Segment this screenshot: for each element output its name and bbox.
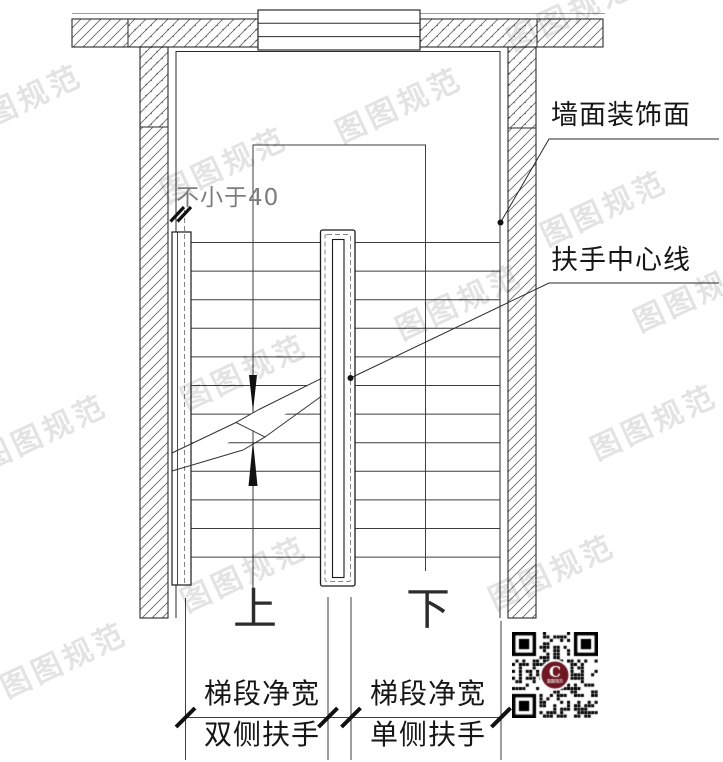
min-clearance-label: 不小于40: [176, 187, 279, 210]
dim-right-width-label: 梯段净宽: [358, 681, 498, 709]
wall-finish-label: 墙面装饰面: [551, 102, 691, 129]
dim-left-handrail-label: 双侧扶手: [192, 722, 332, 750]
window-symbol: [258, 10, 420, 50]
left-handrail: [172, 210, 191, 585]
stair-plan-drawing: 图图规范图图规范图图规范图图规范图图规范图图规范图图规范图图规范图图规范图图规范…: [0, 0, 723, 762]
dim-left-width-label: 梯段净宽: [192, 681, 332, 709]
break-band-mask: [172, 378, 322, 471]
dim-right-handrail-label: 单侧扶手: [358, 722, 498, 750]
left-wall: [140, 47, 168, 618]
handrail-centerline-label: 扶手中心线: [551, 247, 691, 274]
qr-code: [512, 632, 598, 718]
up-label: 上: [233, 588, 277, 632]
right-wall: [508, 47, 536, 618]
down-label: 下: [406, 588, 450, 632]
middle-handrail: [321, 230, 356, 586]
